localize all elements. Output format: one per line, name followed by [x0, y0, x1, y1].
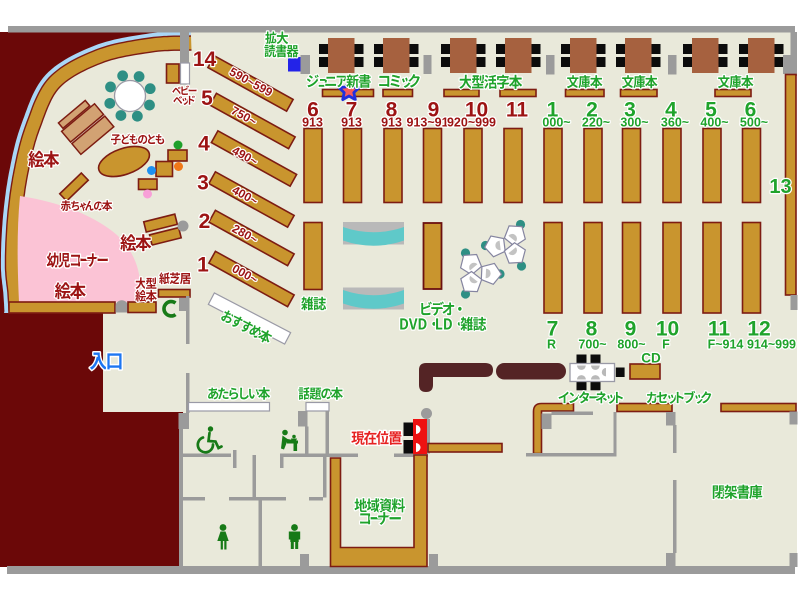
svg-text:3: 3 — [197, 172, 209, 195]
svg-text:300~: 300~ — [620, 116, 648, 130]
svg-text:11: 11 — [506, 99, 529, 122]
svg-text:913: 913 — [341, 116, 362, 130]
svg-text:CD: CD — [641, 351, 661, 366]
svg-text:R: R — [547, 338, 556, 352]
svg-text:913: 913 — [302, 116, 323, 130]
svg-text:13: 13 — [769, 176, 791, 198]
svg-text:000~: 000~ — [542, 116, 570, 130]
svg-text:F~914: F~914 — [708, 338, 744, 352]
svg-text:400~: 400~ — [700, 116, 728, 130]
svg-text:4: 4 — [198, 133, 210, 156]
svg-text:1: 1 — [197, 254, 209, 277]
svg-text:220~: 220~ — [582, 116, 610, 130]
svg-text:2: 2 — [199, 210, 211, 233]
svg-text:360~: 360~ — [661, 116, 689, 130]
svg-text:5: 5 — [201, 87, 213, 110]
svg-text:500~: 500~ — [740, 116, 768, 130]
svg-text:800~: 800~ — [617, 338, 645, 352]
svg-text:700~: 700~ — [578, 338, 606, 352]
svg-text:913: 913 — [381, 116, 402, 130]
svg-text:F: F — [662, 338, 670, 352]
svg-text:920~999: 920~999 — [447, 116, 496, 130]
svg-text:14: 14 — [193, 48, 217, 71]
svg-text:914~999: 914~999 — [747, 338, 796, 352]
